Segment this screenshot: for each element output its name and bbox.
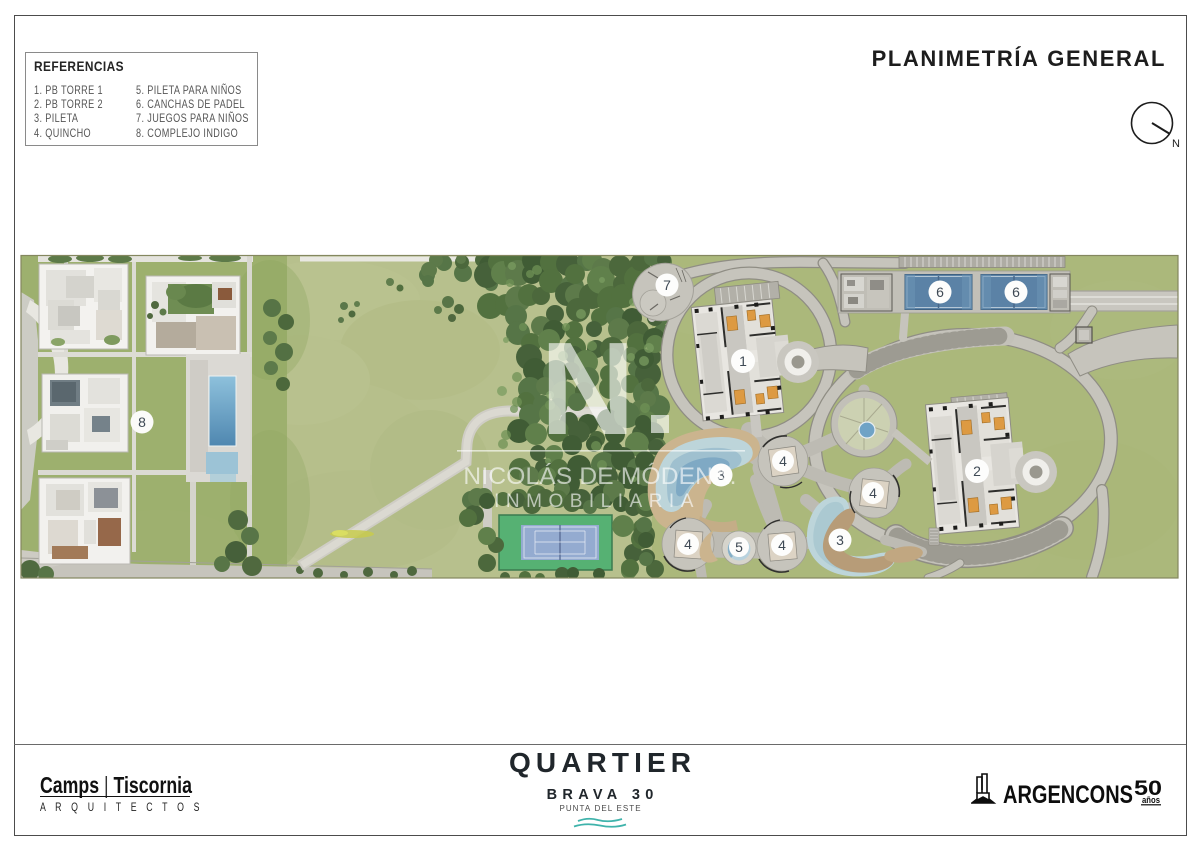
svg-text:ARGENCONS: ARGENCONS (1003, 781, 1133, 808)
svg-text:3: 3 (836, 532, 844, 548)
svg-text:1: 1 (739, 353, 747, 369)
svg-text:4: 4 (779, 453, 787, 469)
svg-text:N: N (540, 315, 635, 462)
svg-text:7: 7 (663, 277, 671, 293)
svg-text:6: 6 (936, 284, 944, 300)
svg-text:4: 4 (684, 536, 692, 552)
svg-text:2: 2 (973, 463, 981, 479)
svg-text:6: 6 (1012, 284, 1020, 300)
svg-text:4: 4 (778, 537, 786, 553)
svg-text:4: 4 (869, 485, 877, 501)
svg-text:INMOBILIARIA: INMOBILIARIA (494, 491, 700, 512)
svg-text:NICOLÁS DE MÓDENA.: NICOLÁS DE MÓDENA. (463, 463, 736, 490)
svg-text:5: 5 (735, 539, 743, 555)
svg-text:8: 8 (138, 414, 146, 430)
